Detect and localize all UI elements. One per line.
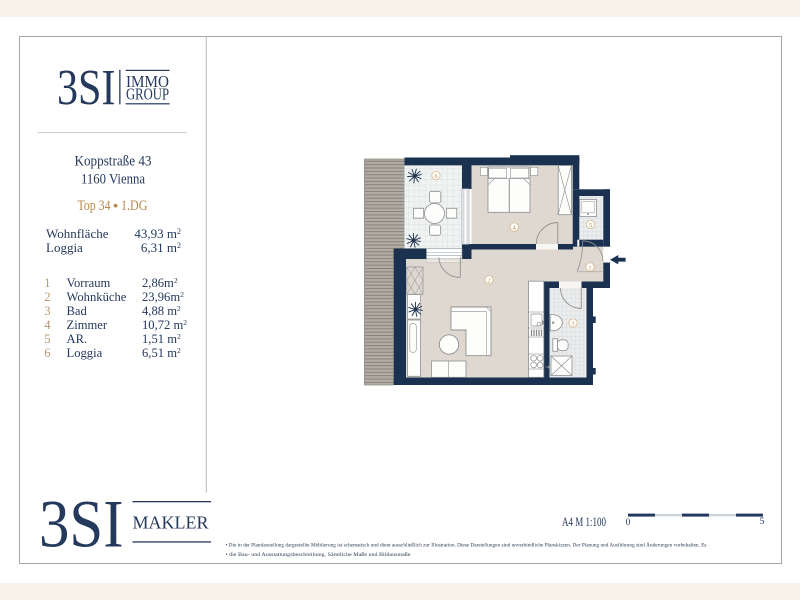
svg-text:43,93 m2: 43,93 m2 [134,226,181,241]
svg-text:5: 5 [760,517,765,527]
svg-text:• die Bau- und Ausstattungsbes: • die Bau- und Ausstattungsbeschreibung.… [226,551,412,558]
svg-text:Top 34: Top 34 [78,198,111,214]
svg-text:3SI: 3SI [57,60,116,116]
svg-text:A4 M 1:100: A4 M 1:100 [562,514,606,529]
svg-text:AR.: AR. [67,332,88,346]
svg-text:Loggia: Loggia [67,346,103,360]
svg-text:5: 5 [44,332,50,346]
svg-text:1160 Vienna: 1160 Vienna [81,170,145,187]
svg-text:0: 0 [626,518,631,528]
svg-text:6: 6 [44,346,50,360]
svg-text:4: 4 [44,318,51,332]
svg-text:Koppstraße 43: Koppstraße 43 [75,152,152,169]
svg-text:6,51 m2: 6,51 m2 [142,346,181,360]
svg-text:1: 1 [44,276,50,290]
svg-text:4,88 m2: 4,88 m2 [142,304,181,318]
svg-text:23,96m2: 23,96m2 [142,290,184,304]
svg-text:2,86m2: 2,86m2 [142,276,178,290]
svg-text:2: 2 [44,290,50,304]
svg-text:GROUP: GROUP [126,84,169,103]
svg-text:Loggia: Loggia [46,240,83,255]
svg-text:Vorraum: Vorraum [67,276,111,290]
svg-text:3SI: 3SI [39,486,124,562]
svg-text:• Die in der Plandarstellung d: • Die in der Plandarstellung dargestellt… [226,542,707,549]
svg-text:Wohnfläche: Wohnfläche [46,226,109,241]
svg-text:Wohnküche: Wohnküche [67,290,127,304]
svg-text:Bad: Bad [67,304,88,318]
svg-text:1: 1 [588,264,591,271]
svg-text:MAKLER: MAKLER [133,513,209,533]
svg-text:Zimmer: Zimmer [67,318,108,332]
svg-text:3: 3 [44,304,50,318]
svg-text:1.DG: 1.DG [121,198,148,214]
svg-text:10,72 m2: 10,72 m2 [142,318,187,332]
svg-text:1,51 m2: 1,51 m2 [142,332,181,346]
svg-text:6,31 m2: 6,31 m2 [141,240,181,255]
svg-text:2: 2 [487,277,490,284]
